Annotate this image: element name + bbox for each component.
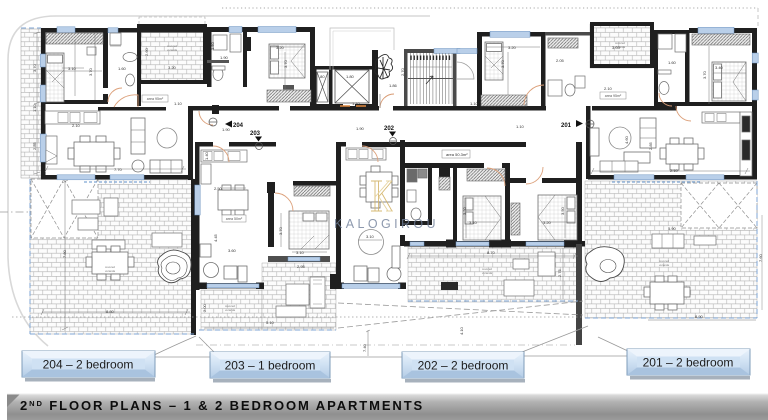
svg-text:1.86: 1.86 xyxy=(389,83,398,88)
svg-text:3.20: 3.20 xyxy=(276,45,285,50)
svg-text:4.60: 4.60 xyxy=(624,135,629,144)
svg-text:3.10: 3.10 xyxy=(296,250,305,255)
svg-text:2.70: 2.70 xyxy=(400,67,405,76)
svg-text:2.60: 2.60 xyxy=(144,47,149,56)
svg-text:3.10: 3.10 xyxy=(68,66,77,71)
svg-text:1.60: 1.60 xyxy=(118,66,127,71)
svg-text:3.40: 3.40 xyxy=(715,65,724,70)
svg-text:3.70: 3.70 xyxy=(702,70,707,79)
svg-text:1.60: 1.60 xyxy=(668,60,677,65)
svg-text:202 – 2 bedroom: 202 – 2 bedroom xyxy=(418,359,509,373)
svg-text:2.10: 2.10 xyxy=(670,168,679,173)
svg-text:7.60: 7.60 xyxy=(758,253,763,262)
svg-text:1.10: 1.10 xyxy=(32,103,37,112)
svg-text:3.70: 3.70 xyxy=(278,226,283,235)
svg-text:5.90: 5.90 xyxy=(668,226,677,231)
svg-text:area 50.3m²: area 50.3m² xyxy=(446,152,468,157)
svg-text:2.00: 2.00 xyxy=(202,303,207,312)
svg-text:1.10: 1.10 xyxy=(174,101,183,106)
svg-text:7.40: 7.40 xyxy=(362,343,367,352)
svg-text:3.50: 3.50 xyxy=(462,206,467,215)
svg-text:201: 201 xyxy=(561,123,572,129)
svg-text:1.40: 1.40 xyxy=(204,151,209,160)
svg-text:2.50: 2.50 xyxy=(214,186,223,191)
svg-text:3.10: 3.10 xyxy=(366,234,375,239)
svg-text:7.80: 7.80 xyxy=(62,249,67,258)
svg-text:KALOGIROU: KALOGIROU xyxy=(334,217,439,231)
svg-text:.80: .80 xyxy=(319,74,325,79)
svg-text:3.20: 3.20 xyxy=(508,45,517,50)
svg-text:1.10: 1.10 xyxy=(352,101,361,106)
svg-text:area 50m²: area 50m² xyxy=(226,217,243,221)
svg-text:1.90: 1.90 xyxy=(222,127,231,132)
svg-text:veranda: veranda xyxy=(167,48,178,52)
svg-text:203: 203 xyxy=(250,131,261,137)
svg-text:1.10: 1.10 xyxy=(516,124,525,129)
svg-text:2ND FLOOR PLANS – 1 & 2 BEDROO: 2ND FLOOR PLANS – 1 & 2 BEDROOM APARTMEN… xyxy=(20,398,424,413)
svg-text:2.75: 2.75 xyxy=(557,268,562,277)
svg-text:8.90: 8.90 xyxy=(695,314,704,319)
svg-text:1.50: 1.50 xyxy=(210,41,215,50)
svg-text:3.20: 3.20 xyxy=(168,65,177,70)
svg-text:5.10: 5.10 xyxy=(266,320,275,325)
svg-text:3.50: 3.50 xyxy=(560,206,565,215)
svg-text:2.85: 2.85 xyxy=(32,141,37,150)
svg-text:3.20: 3.20 xyxy=(543,220,552,225)
svg-text:3.70: 3.70 xyxy=(283,59,288,68)
svg-text:veranda: veranda xyxy=(482,271,493,275)
svg-text:1.80: 1.80 xyxy=(346,74,355,79)
svg-text:203 – 1 bedroom: 203 – 1 bedroom xyxy=(225,359,316,373)
svg-text:1.90: 1.90 xyxy=(356,126,365,131)
svg-text:veranda: veranda xyxy=(659,263,670,267)
svg-text:8.70: 8.70 xyxy=(487,250,496,255)
svg-text:1.90: 1.90 xyxy=(220,55,229,60)
svg-text:204 – 2 bedroom: 204 – 2 bedroom xyxy=(43,358,134,372)
svg-text:8.80: 8.80 xyxy=(106,309,115,314)
svg-text:3.10: 3.10 xyxy=(469,220,478,225)
svg-text:area 95m²: area 95m² xyxy=(605,94,622,98)
svg-text:7.70: 7.70 xyxy=(114,167,123,172)
svg-text:2.10: 2.10 xyxy=(604,86,613,91)
svg-text:202: 202 xyxy=(384,126,395,132)
svg-text:4.45: 4.45 xyxy=(213,233,218,242)
svg-text:4.10: 4.10 xyxy=(459,326,464,335)
svg-text:3.03: 3.03 xyxy=(612,45,621,50)
svg-text:2.10: 2.10 xyxy=(72,123,81,128)
svg-text:3.60: 3.60 xyxy=(228,248,237,253)
svg-text:3.70: 3.70 xyxy=(500,59,505,68)
svg-text:area 95m²: area 95m² xyxy=(147,97,164,101)
svg-text:2.85: 2.85 xyxy=(648,141,653,150)
svg-text:1.10: 1.10 xyxy=(470,101,479,106)
svg-text:204: 204 xyxy=(233,123,244,129)
svg-text:201 – 2 bedroom: 201 – 2 bedroom xyxy=(643,356,734,370)
svg-text:veranda: veranda xyxy=(225,308,236,312)
svg-text:3.70: 3.70 xyxy=(88,67,93,76)
svg-text:veranda: veranda xyxy=(105,269,116,273)
svg-text:2.05: 2.05 xyxy=(556,58,565,63)
svg-text:2.95: 2.95 xyxy=(297,264,306,269)
svg-text:3.70: 3.70 xyxy=(32,63,37,72)
